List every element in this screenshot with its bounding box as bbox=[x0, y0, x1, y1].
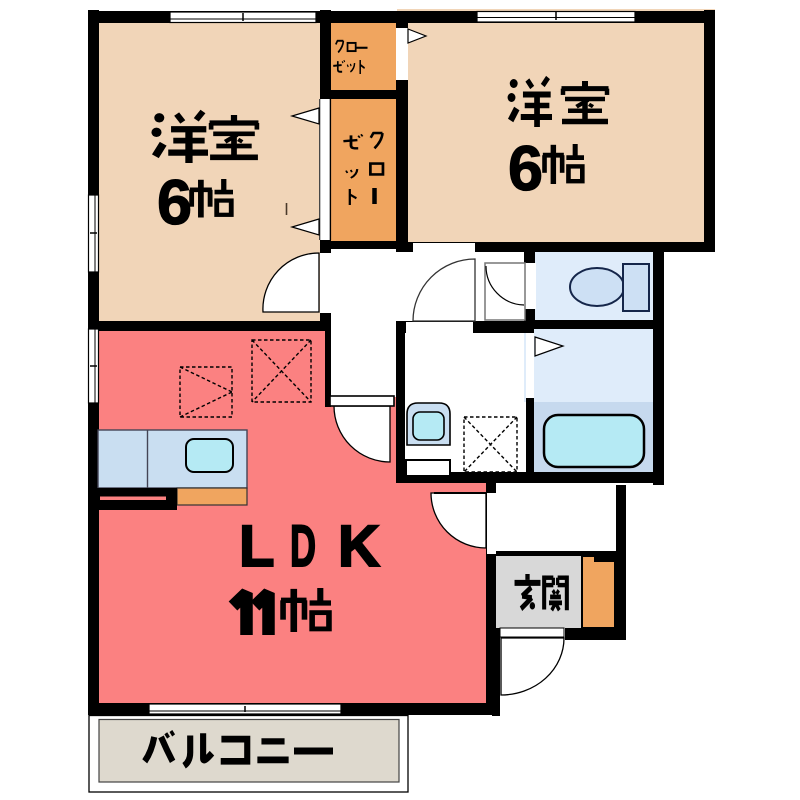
svg-text:6: 6 bbox=[157, 168, 192, 238]
svg-text:K: K bbox=[338, 514, 380, 579]
svg-text:D: D bbox=[290, 514, 316, 579]
svg-text:L: L bbox=[239, 514, 274, 579]
svg-text:6: 6 bbox=[508, 134, 543, 204]
